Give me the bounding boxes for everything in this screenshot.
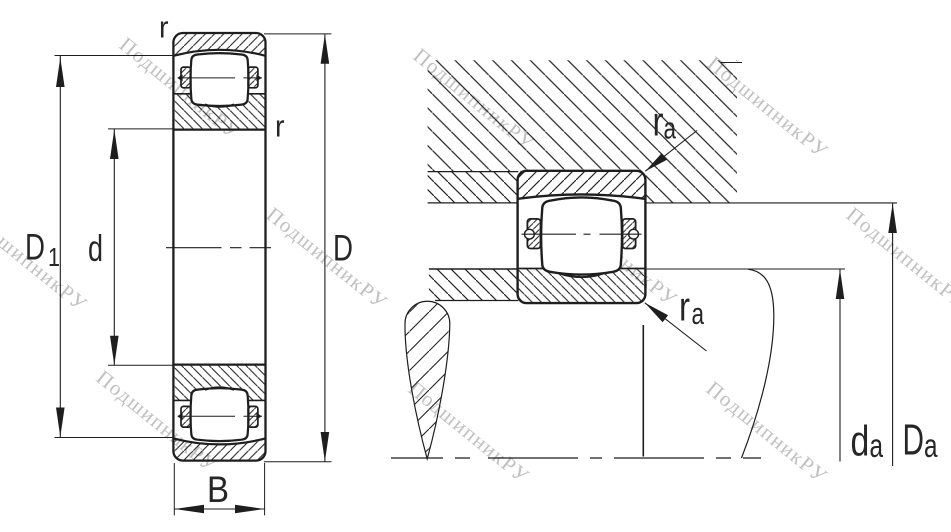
svg-text:B: B [207, 469, 229, 510]
svg-text:a: a [692, 296, 705, 331]
svg-text:r: r [679, 284, 690, 330]
svg-text:r: r [275, 109, 285, 144]
svg-text:D: D [25, 227, 45, 268]
svg-text:a: a [870, 427, 884, 464]
svg-text:a: a [924, 427, 938, 464]
svg-text:1: 1 [48, 242, 60, 272]
svg-text:r: r [159, 10, 169, 45]
svg-text:a: a [664, 111, 677, 146]
svg-text:D: D [903, 415, 925, 464]
svg-text:d: d [851, 417, 870, 465]
svg-text:r: r [653, 99, 664, 145]
svg-text:D: D [333, 228, 353, 269]
svg-text:d: d [88, 228, 103, 269]
